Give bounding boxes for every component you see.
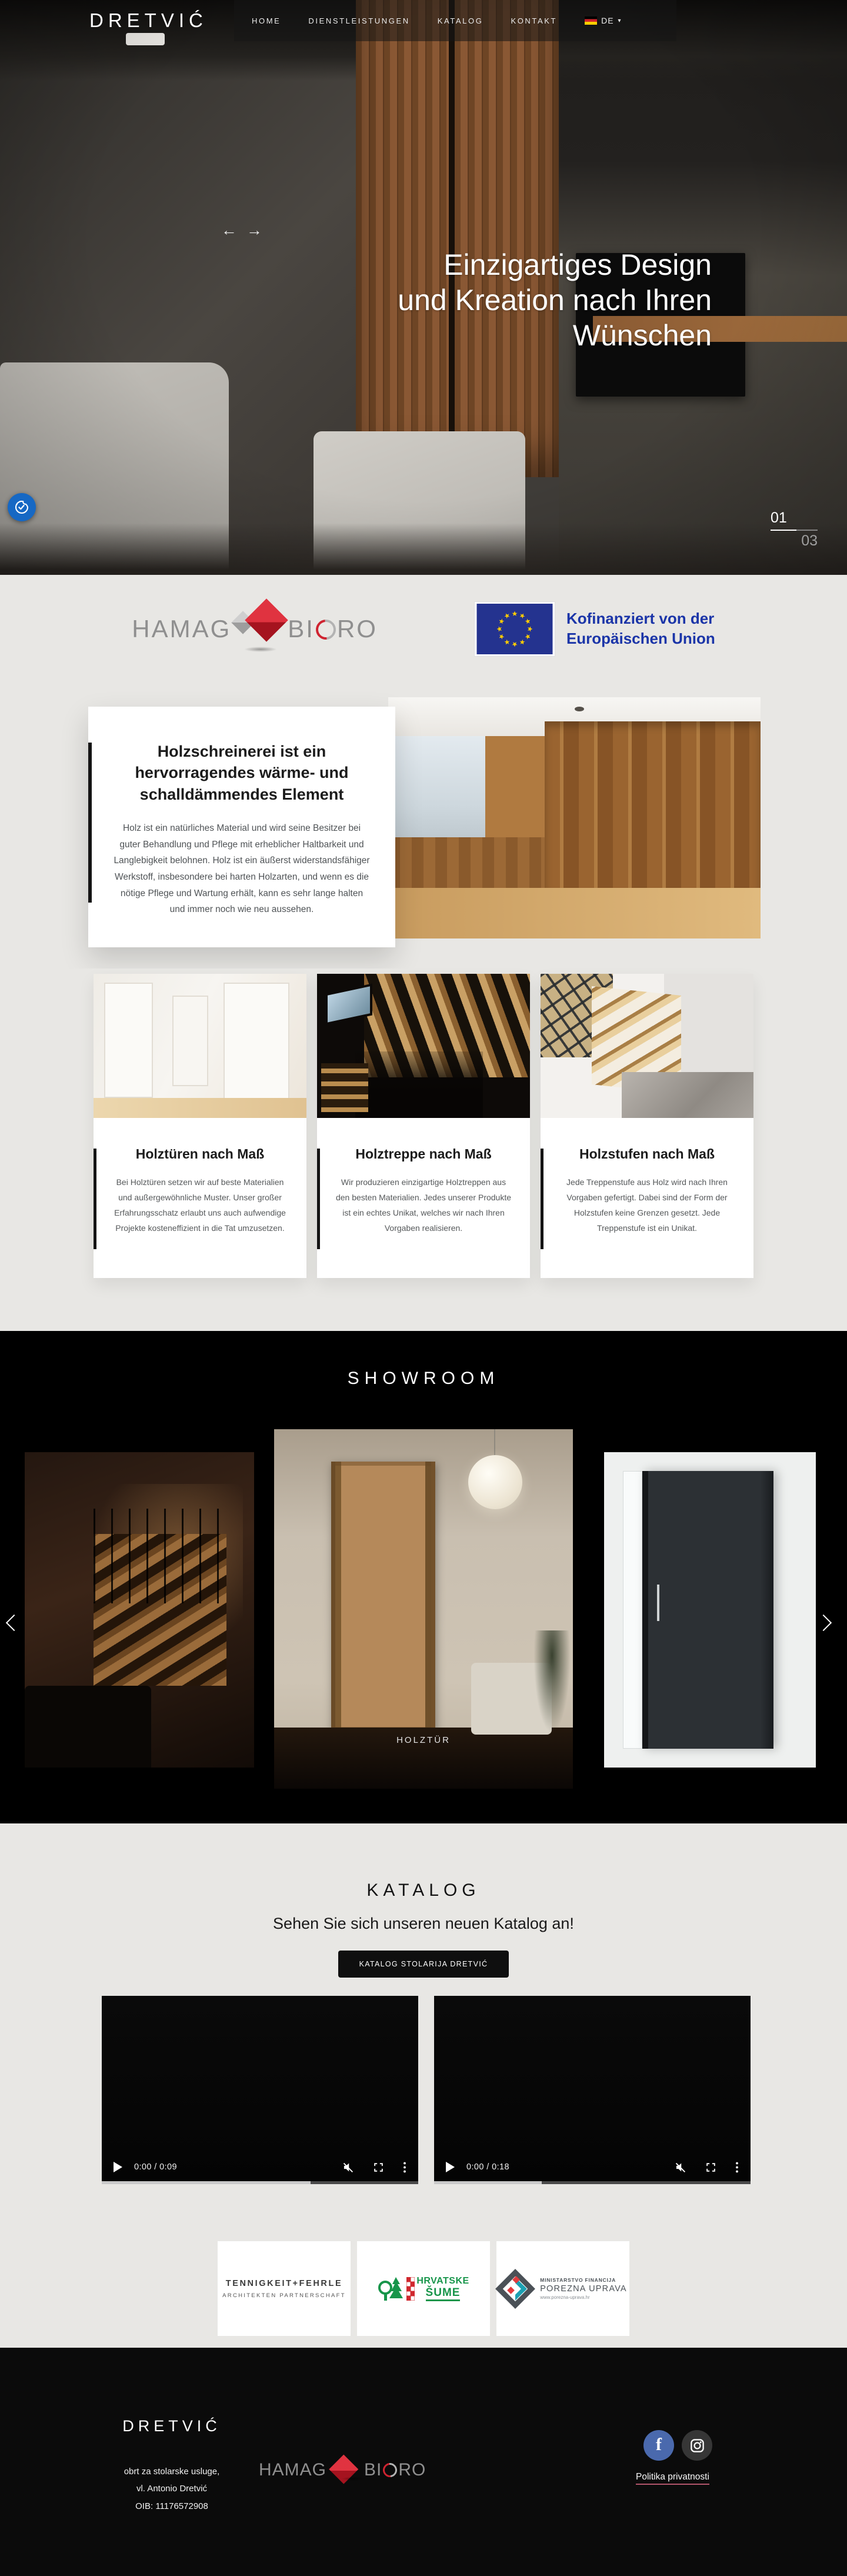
hrvatske-sume-tree-icon — [378, 2275, 405, 2303]
service-card-holzstufen: Holzstufen nach Maß Jede Treppenstufe au… — [541, 974, 753, 1278]
katalog-subtitle: Sehen Sie sich unseren neuen Katalog an! — [0, 1915, 847, 1933]
partner-logos-row: TENNIGKEIT+FEHRLE ARCHITEKTEN PARTNERSCH… — [0, 2241, 847, 2336]
privacy-link[interactable]: Politika privatnosti — [636, 2472, 709, 2485]
partner-ministry: MINISTARSTVO FINANCIJA — [540, 2277, 627, 2283]
nav-katalog[interactable]: KATALOG — [438, 16, 483, 25]
nav-dienstleistungen[interactable]: DIENSTLEISTUNGEN — [308, 16, 409, 25]
katalog-button[interactable]: KATALOG STOLARIJA DRETVIĆ — [338, 1951, 509, 1978]
slide-current: 01 — [771, 510, 787, 526]
hero-title-line: und Kreation nach Ihren — [398, 282, 712, 318]
carousel-next-icon[interactable] — [815, 1615, 832, 1631]
hero-slider-arrows: ← → — [221, 221, 262, 239]
caret-down-icon: ▾ — [618, 18, 622, 24]
partner-name: HRVATSKE ŠUME — [416, 2277, 469, 2301]
partner-hrvatske-sume: HRVATSKE ŠUME — [357, 2241, 490, 2336]
video-player-2[interactable]: 0:00 / 0:18 — [434, 1996, 751, 2184]
play-icon[interactable] — [446, 2162, 455, 2172]
service-body: Bei Holztüren setzen wir auf beste Mater… — [112, 1175, 288, 1236]
partner-name: TENNIGKEIT+FEHRLE — [226, 2279, 342, 2288]
service-photo-doors — [94, 974, 306, 1118]
partner-porezna-uprava: MINISTARSTVO FINANCIJA POREZNA UPRAVA ww… — [496, 2241, 629, 2336]
footer-logo: DRETVIĆ — [42, 2417, 301, 2435]
flag-de-icon — [585, 16, 597, 25]
service-photo-steps — [541, 974, 753, 1118]
showroom-section: SHOWROOM HOLZTÜR — [0, 1331, 847, 1823]
showroom-slide-holztuer[interactable]: HOLZTÜR — [274, 1429, 573, 1789]
carousel-prev-icon[interactable] — [6, 1615, 22, 1631]
next-slide-arrow-icon[interactable]: → — [246, 221, 262, 239]
hamag-bicro-logo: HAMAG BIRO — [132, 604, 378, 654]
partner-subtitle: ARCHITEKTEN PARTNERSCHAFT — [222, 2292, 346, 2299]
slide-total: 03 — [771, 532, 818, 550]
accent-bar — [317, 1149, 320, 1249]
social-links: f — [643, 2430, 712, 2461]
showroom-slide-front-door[interactable] — [604, 1452, 816, 1768]
cookie-settings-button[interactable] — [8, 493, 36, 521]
mute-icon[interactable] — [674, 2161, 686, 2174]
service-title: Holzstufen nach Maß — [558, 1146, 736, 1162]
fullscreen-icon[interactable] — [373, 2162, 384, 2173]
croatian-checkerboard-icon — [406, 2277, 415, 2301]
service-body: Wir produzieren einzigartige Holztreppen… — [335, 1175, 512, 1236]
overflow-menu-icon[interactable] — [735, 2161, 739, 2174]
video-row: 0:00 / 0:09 0:00 / 0:18 — [102, 1996, 751, 2184]
eu-flag-icon — [475, 602, 555, 656]
mute-icon[interactable] — [342, 2161, 354, 2174]
hero-title: Einzigartiges Design und Kreation nach I… — [398, 247, 712, 353]
footer-hamag-bicro-logo: HAMAG BIRO — [259, 2452, 426, 2488]
prev-slide-arrow-icon[interactable]: ← — [221, 221, 237, 239]
hamag-cube-icon — [231, 604, 288, 654]
showroom-slide-stairs[interactable] — [25, 1452, 254, 1768]
showroom-title: SHOWROOM — [0, 1331, 847, 1389]
footer: DRETVIĆ obrt za stolarske usluge, vl. An… — [0, 2348, 847, 2576]
hamag-word: HAMAG — [132, 615, 231, 643]
partner-url: www.porezna-uprava.hr — [540, 2295, 627, 2300]
slide-indicator: 01 03 — [771, 510, 818, 550]
overflow-menu-icon[interactable] — [403, 2161, 406, 2174]
services-section: Holztüren nach Maß Bei Holztüren setzen … — [0, 969, 847, 1331]
video-progress-bar[interactable] — [102, 2181, 418, 2184]
bicro-o-icon — [312, 615, 340, 644]
hero-title-line: Einzigartiges Design — [398, 247, 712, 282]
hero-section: DRETVIĆ HOME DIENSTLEISTUNGEN KATALOG KO… — [0, 0, 847, 575]
service-card-holztreppe: Holztreppe nach Maß Wir produzieren einz… — [317, 974, 530, 1278]
bicro-o-icon — [380, 2460, 400, 2480]
eu-cofinance-logo: Kofinanziert von der Europäischen Union — [475, 602, 715, 656]
video-progress-bar[interactable] — [434, 2181, 751, 2184]
service-title: Holztreppe nach Maß — [335, 1146, 512, 1162]
service-body: Jede Treppenstufe aus Holz wird nach Ihr… — [559, 1175, 735, 1236]
site-logo[interactable]: DRETVIĆ — [89, 9, 208, 32]
feature-title: Holzschreinerei ist ein hervorragendes w… — [111, 741, 373, 805]
feature-section: Holzschreinerei ist ein hervorragendes w… — [0, 683, 847, 969]
cookie-check-icon — [13, 498, 31, 516]
video-controls: 0:00 / 0:18 — [434, 2154, 751, 2181]
play-icon[interactable] — [114, 2162, 122, 2172]
service-title: Holztüren nach Maß — [111, 1146, 289, 1162]
katalog-title: KATALOG — [0, 1823, 847, 1901]
video-player-1[interactable]: 0:00 / 0:09 — [102, 1996, 418, 2184]
hero-title-line: Wünschen — [398, 318, 712, 353]
video-time: 0:00 / 0:18 — [466, 2162, 509, 2172]
instagram-icon[interactable] — [682, 2430, 712, 2461]
video-controls: 0:00 / 0:09 — [102, 2154, 418, 2181]
feature-card: Holzschreinerei ist ein hervorragendes w… — [88, 707, 395, 947]
accent-bar — [94, 1149, 96, 1249]
hamag-cube-icon — [332, 2458, 358, 2482]
katalog-section: KATALOG Sehen Sie sich unseren neuen Kat… — [0, 1823, 847, 2348]
sponsors-section: HAMAG BIRO Kofinanziert von der Europäis… — [0, 575, 847, 683]
video-time: 0:00 / 0:09 — [134, 2162, 177, 2172]
accent-bar — [541, 1149, 543, 1249]
fullscreen-icon[interactable] — [705, 2162, 716, 2173]
porezna-diamond-icon — [499, 2272, 532, 2305]
facebook-icon[interactable]: f — [643, 2430, 674, 2461]
slide-caption: HOLZTÜR — [274, 1735, 573, 1745]
bicro-word: BIRO — [288, 615, 378, 643]
accent-bar — [88, 743, 92, 903]
service-card-holztueren: Holztüren nach Maß Bei Holztüren setzen … — [94, 974, 306, 1278]
slide-indicator-line — [771, 530, 818, 531]
nav-home[interactable]: HOME — [252, 16, 281, 25]
language-selector[interactable]: DE ▾ — [585, 16, 621, 25]
partner-tennigkeit-fehrle: TENNIGKEIT+FEHRLE ARCHITEKTEN PARTNERSCH… — [218, 2241, 351, 2336]
feature-body: Holz ist ein natürliches Material und wi… — [112, 820, 372, 917]
main-nav: HOME DIENSTLEISTUNGEN KATALOG KONTAKT DE… — [234, 0, 676, 41]
wardrobe-photo — [388, 697, 761, 938]
partner-name: POREZNA UPRAVA — [540, 2284, 627, 2294]
nav-kontakt[interactable]: KONTAKT — [511, 16, 557, 25]
service-photo-staircase — [317, 974, 530, 1118]
language-code: DE — [601, 16, 613, 25]
eu-cofinance-text: Kofinanziert von der Europäischen Union — [566, 609, 715, 649]
